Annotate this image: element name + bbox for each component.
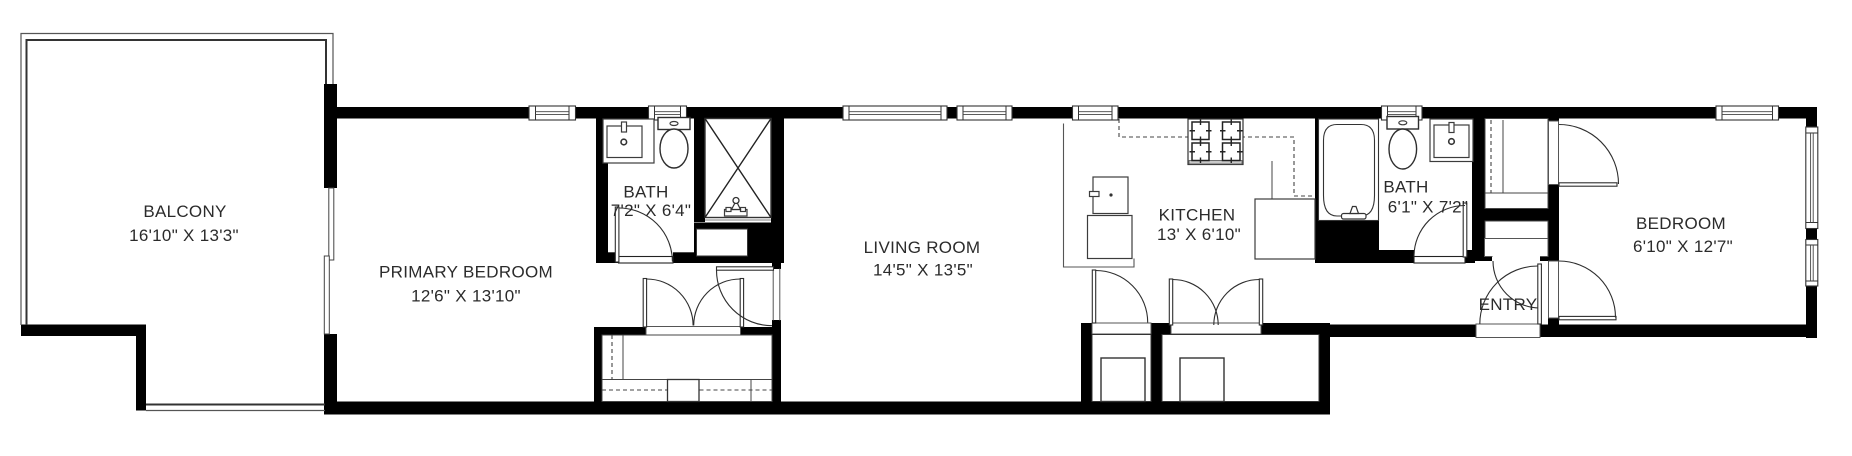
- svg-text:BEDROOM: BEDROOM: [1636, 214, 1726, 233]
- svg-text:13' X 6'10": 13' X 6'10": [1157, 225, 1241, 244]
- svg-text:7'2" X 6'4": 7'2" X 6'4": [611, 201, 691, 220]
- svg-text:BALCONY: BALCONY: [143, 202, 226, 221]
- svg-text:12'6" X 13'10": 12'6" X 13'10": [411, 287, 521, 306]
- svg-text:ENTRY: ENTRY: [1479, 295, 1538, 314]
- svg-text:PRIMARY BEDROOM: PRIMARY BEDROOM: [379, 263, 553, 282]
- svg-text:KITCHEN: KITCHEN: [1159, 206, 1236, 225]
- svg-text:BATH: BATH: [623, 183, 668, 202]
- svg-text:LIVING ROOM: LIVING ROOM: [864, 238, 981, 257]
- svg-text:16'10" X 13'3": 16'10" X 13'3": [129, 226, 239, 245]
- svg-text:BATH: BATH: [1383, 178, 1428, 197]
- svg-text:6'1" X 7'2": 6'1" X 7'2": [1388, 198, 1468, 217]
- svg-text:6'10" X 12'7": 6'10" X 12'7": [1633, 237, 1733, 256]
- svg-text:14'5" X 13'5": 14'5" X 13'5": [873, 261, 973, 280]
